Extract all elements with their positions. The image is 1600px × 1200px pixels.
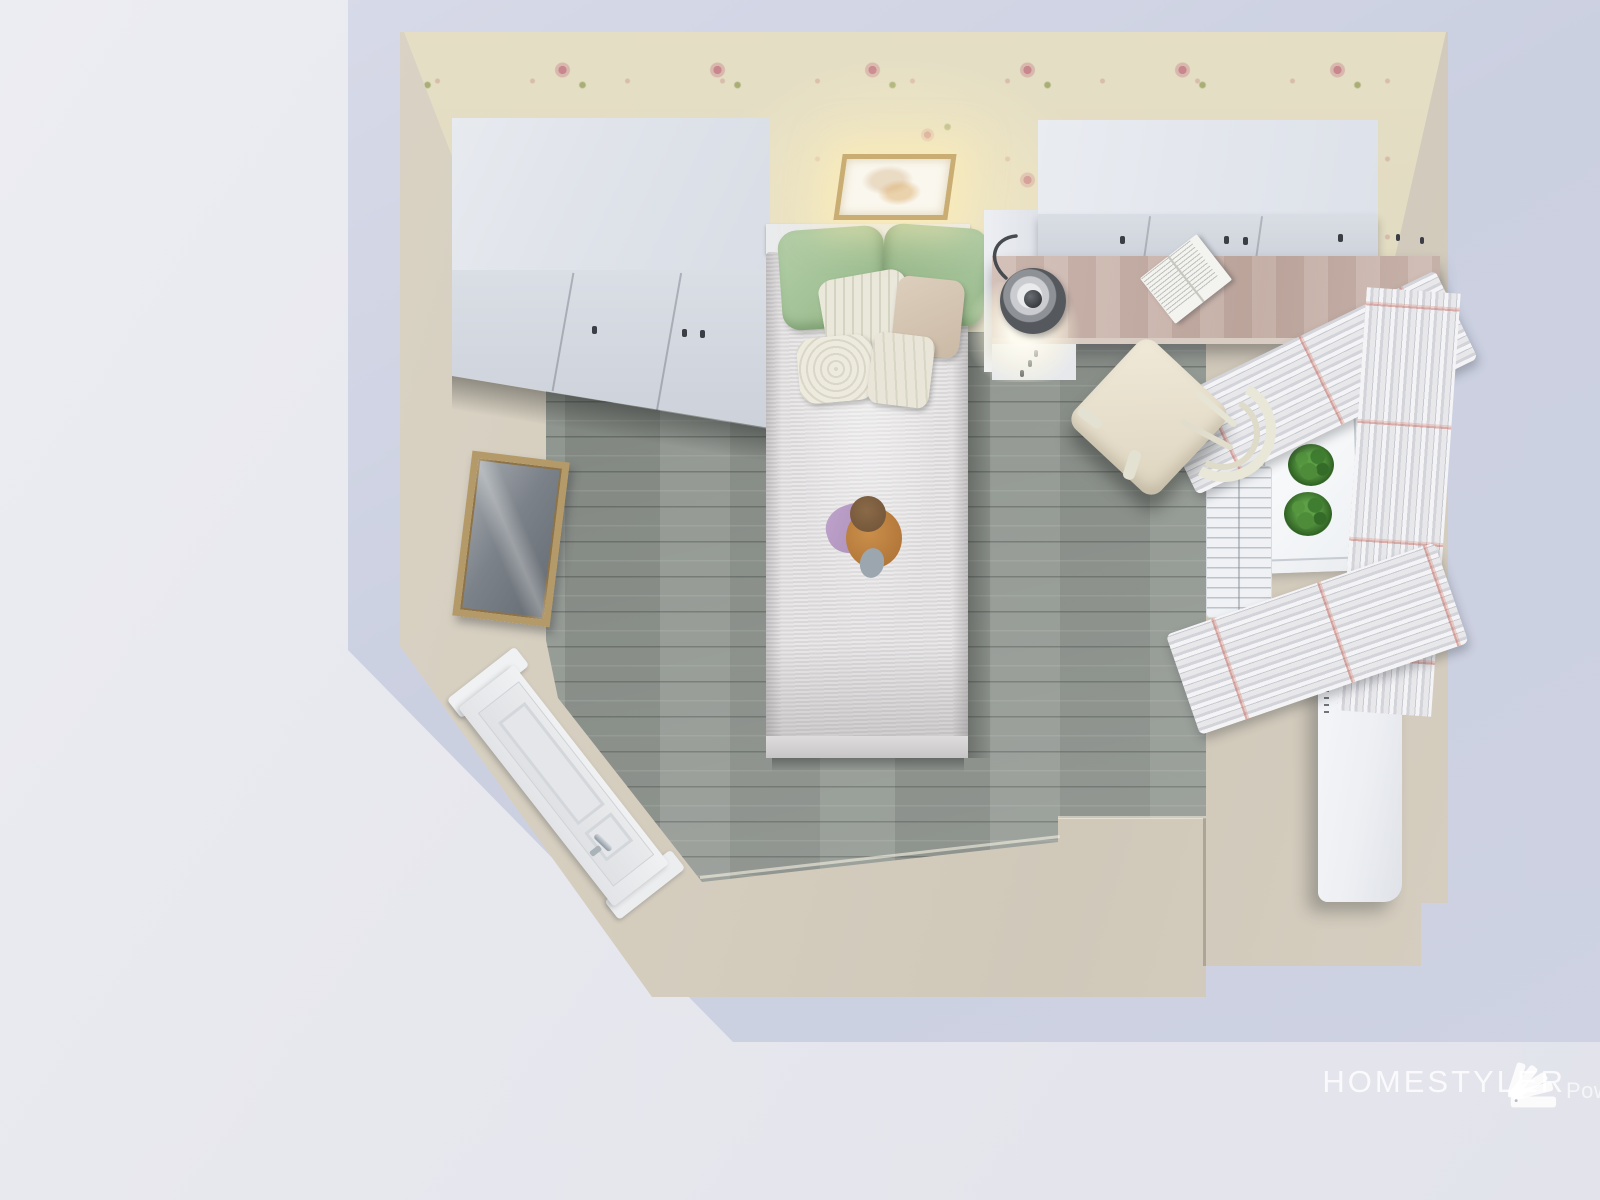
wardrobe-handle [682,329,687,337]
potted-plant [1284,492,1332,536]
cabinet-handle [1420,237,1424,244]
overhead-cabinets-top [1038,120,1378,214]
plush-doll [826,490,910,578]
bed-foot-shadow [772,758,964,772]
wardrobe-top-face [452,118,770,270]
cabinet-handle [1243,237,1248,245]
ceiling-lamp [833,154,956,220]
wardrobe-handle [700,330,705,338]
wall-tv [452,451,569,628]
cabinet-handle [1224,236,1229,244]
floorplan-render: Powered by HOMESTYLER [0,0,1600,1200]
watermark-powered-by: Powered by [1566,1078,1600,1130]
wardrobe-handle [592,326,597,334]
cabinet-handle [1396,234,1400,241]
doll-hair [850,496,886,532]
white-pillow [866,330,936,409]
ruffled-pillow [795,333,876,405]
entry-step-side [1203,818,1206,966]
radiator [1206,466,1272,618]
tv-screen-reflection [460,458,562,619]
bed-footboard [766,736,968,758]
cabinet-handle [1120,236,1125,244]
watermark-brand: HOMESTYLER [1322,1064,1566,1100]
cabinet-handle [1338,234,1343,242]
potted-plant [1288,444,1334,486]
desk-lamp-knob [1024,290,1042,308]
entry-step [1058,816,1206,819]
